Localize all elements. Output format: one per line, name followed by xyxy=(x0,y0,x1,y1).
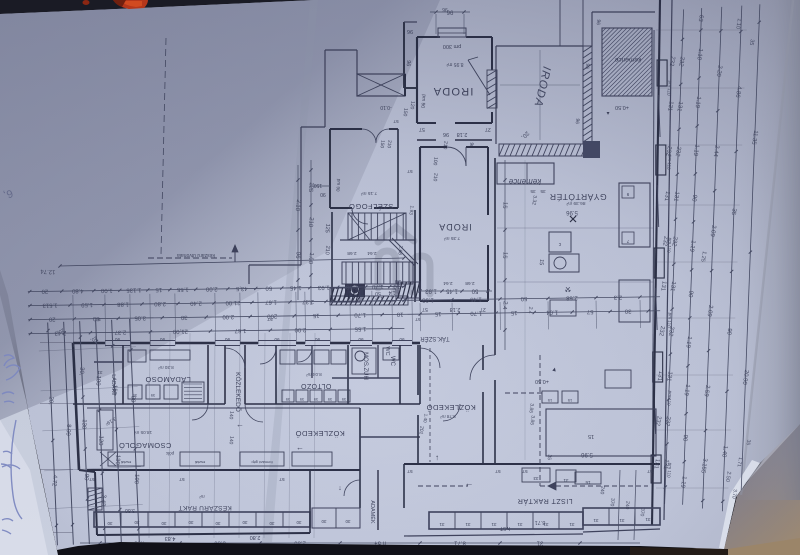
svg-text:-0.10: -0.10 xyxy=(380,104,392,110)
svg-text:2.40: 2.40 xyxy=(189,300,201,306)
svg-text:2.68: 2.68 xyxy=(347,250,357,256)
svg-text:31: 31 xyxy=(517,522,523,527)
svg-text:130: 130 xyxy=(80,419,87,430)
svg-text:esztál: esztál xyxy=(195,460,206,465)
svg-text:1.4ᵛ: 1.4ᵛ xyxy=(375,296,383,301)
svg-text:IRODA: IRODA xyxy=(438,222,472,232)
svg-text:39: 39 xyxy=(313,397,318,402)
svg-text:31: 31 xyxy=(439,522,445,527)
svg-text:96: 96 xyxy=(442,6,448,12)
svg-text:ADAMÉK: ADAMÉK xyxy=(369,500,376,524)
svg-text:57: 57 xyxy=(407,468,413,474)
svg-text:3.05: 3.05 xyxy=(134,314,146,320)
svg-text:+0.50: +0.50 xyxy=(535,378,549,384)
svg-text:2.18: 2.18 xyxy=(457,131,468,137)
svg-text:1.513: 1.513 xyxy=(42,302,58,308)
svg-text:2.00: 2.00 xyxy=(222,313,234,319)
svg-text:KÖZLEKEDŐ: KÖZLEKEDŐ xyxy=(295,429,344,438)
svg-text:90: 90 xyxy=(399,337,405,342)
svg-text:201: 201 xyxy=(417,426,424,435)
svg-text:90: 90 xyxy=(129,395,136,403)
svg-text:һ 5Ŧ: һ 5Ŧ xyxy=(500,525,510,531)
svg-text:2.3: 2.3 xyxy=(613,294,622,300)
svg-text:50: 50 xyxy=(375,290,381,296)
svg-text:57: 57 xyxy=(407,168,413,174)
svg-text:m²: m² xyxy=(199,494,205,499)
svg-text:4.80: 4.80 xyxy=(71,287,83,293)
svg-text:30: 30 xyxy=(296,520,302,525)
svg-text:27: 27 xyxy=(485,126,491,132)
svg-text:formázó gép: formázó gép xyxy=(251,460,272,464)
svg-text:1.93: 1.93 xyxy=(317,284,329,290)
svg-text:1.55: 1.55 xyxy=(354,325,366,331)
svg-text:2.80: 2.80 xyxy=(153,300,165,306)
svg-text:15: 15 xyxy=(567,398,572,403)
svg-text:10: 10 xyxy=(393,283,400,289)
svg-text:←: ← xyxy=(465,478,474,488)
svg-text:30,: 30, xyxy=(78,367,85,376)
svg-text:90: 90 xyxy=(160,337,166,342)
svg-text:210: 210 xyxy=(431,173,438,182)
svg-text:140: 140 xyxy=(227,436,234,445)
svg-text:150: 150 xyxy=(378,140,385,149)
svg-text:31: 31 xyxy=(593,518,599,523)
svg-text:esztál: esztál xyxy=(121,460,132,465)
svg-text:30: 30 xyxy=(269,521,275,526)
svg-text:43,5: 43,5 xyxy=(235,285,247,291)
svg-text:190: 190 xyxy=(133,474,140,485)
svg-text:2.00: 2.00 xyxy=(205,285,217,291)
svg-text:8.30 m²: 8.30 m² xyxy=(158,365,174,370)
svg-text:370: 370 xyxy=(638,508,645,517)
svg-text:▲: ▲ xyxy=(606,110,611,116)
svg-text:készáru ütvonala: készáru ütvonala xyxy=(177,252,215,258)
svg-text:96: 96 xyxy=(574,118,581,124)
svg-text:2.43: 2.43 xyxy=(345,283,357,289)
svg-text:130: 130 xyxy=(114,455,121,466)
svg-text:↑: ↑ xyxy=(435,453,439,462)
svg-text:57: 57 xyxy=(89,476,95,482)
svg-text:1.93: 1.93 xyxy=(425,287,437,293)
svg-text:2.18: 2.18 xyxy=(450,306,461,312)
svg-text:57: 57 xyxy=(495,468,501,474)
svg-text:30: 30 xyxy=(624,308,631,314)
svg-text:7.35 m²: 7.35 m² xyxy=(443,235,460,241)
svg-text:96: 96 xyxy=(405,60,412,67)
svg-text:15: 15 xyxy=(434,310,441,316)
svg-text:50: 50 xyxy=(92,315,99,321)
svg-text:35: 35 xyxy=(540,189,546,194)
svg-text:һ 5Ŧ: һ 5Ŧ xyxy=(374,539,386,545)
svg-text:57: 57 xyxy=(279,476,285,482)
svg-text:90: 90 xyxy=(358,337,364,342)
svg-text:96: 96 xyxy=(407,28,413,34)
svg-text:50: 50 xyxy=(471,287,478,293)
svg-text:96: 96 xyxy=(443,131,449,137)
svg-text:31: 31 xyxy=(619,518,625,523)
svg-text:35: 35 xyxy=(530,189,536,194)
svg-text:31: 31 xyxy=(543,522,549,527)
svg-text:30: 30 xyxy=(321,519,327,524)
svg-text:2.64: 2.64 xyxy=(443,280,453,286)
svg-text:8.71: 8.71 xyxy=(454,539,466,545)
svg-text:3.32: 3.32 xyxy=(530,195,537,206)
svg-text:90: 90 xyxy=(320,191,326,197)
svg-text:30: 30 xyxy=(180,314,187,320)
svg-text:15: 15 xyxy=(588,433,594,439)
svg-text:2.68: 2.68 xyxy=(565,294,577,300)
svg-text:LÁDAMOSÓ: LÁDAMOSÓ xyxy=(145,375,191,384)
svg-text:31: 31 xyxy=(569,522,575,527)
svg-text:1.67: 1.67 xyxy=(264,299,276,305)
svg-text:35: 35 xyxy=(748,39,755,46)
svg-text:120: 120 xyxy=(97,435,104,446)
svg-text:⚒: ⚒ xyxy=(565,285,571,293)
svg-text:1.00: 1.00 xyxy=(100,287,112,293)
svg-text:20: 20 xyxy=(48,316,55,322)
svg-text:57: 57 xyxy=(419,126,425,132)
svg-text:86.39 m²: 86.39 m² xyxy=(566,200,585,206)
svg-text:39: 39 xyxy=(341,397,346,402)
svg-text:210: 210 xyxy=(323,245,330,255)
svg-text:190: 190 xyxy=(94,375,101,386)
svg-text:210: 210 xyxy=(441,141,448,150)
svg-text:2.37: 2.37 xyxy=(114,329,126,335)
svg-text:39: 39 xyxy=(327,397,332,402)
svg-text:16: 16 xyxy=(585,480,591,485)
svg-text:8.04 m²: 8.04 m² xyxy=(306,372,322,377)
svg-text:1.93: 1.93 xyxy=(407,205,414,215)
svg-text:15: 15 xyxy=(155,286,162,292)
svg-text:1.88: 1.88 xyxy=(116,301,128,307)
svg-text:31: 31 xyxy=(563,478,569,483)
svg-text:90: 90 xyxy=(274,337,280,342)
svg-text:1.70: 1.70 xyxy=(470,310,482,316)
svg-text:21.00: 21.00 xyxy=(225,299,241,305)
svg-text:4.72: 4.72 xyxy=(50,474,57,487)
svg-text:↓: ↓ xyxy=(338,485,342,492)
svg-text:1.45: 1.45 xyxy=(446,287,458,293)
svg-text:5.96: 5.96 xyxy=(581,451,593,457)
svg-text:57: 57 xyxy=(415,316,421,322)
svg-text:IRODA: IRODA xyxy=(433,85,474,97)
svg-text:57: 57 xyxy=(179,476,185,482)
svg-text:1.45: 1.45 xyxy=(469,296,481,302)
svg-text:31: 31 xyxy=(491,522,497,527)
svg-text:120: 120 xyxy=(408,101,415,110)
svg-text:240: 240 xyxy=(598,486,605,495)
svg-text:3.85: 3.85 xyxy=(527,403,534,414)
svg-text:20,: 20, xyxy=(47,396,54,405)
svg-text:39: 39 xyxy=(299,397,304,402)
svg-text:2.80: 2.80 xyxy=(250,534,261,540)
svg-text:30: 30 xyxy=(161,521,167,526)
svg-text:kemence: kemence xyxy=(508,177,541,186)
svg-text:3.85: 3.85 xyxy=(528,415,535,426)
svg-text:8.95 m²: 8.95 m² xyxy=(446,61,463,67)
svg-text:96: 96 xyxy=(595,19,602,25)
svg-text:KÖZLEKEDŐ: KÖZLEKEDŐ xyxy=(234,372,243,412)
svg-text:15: 15 xyxy=(538,259,545,266)
svg-text:50: 50 xyxy=(520,295,527,301)
svg-text:21,00: 21,00 xyxy=(172,328,188,334)
svg-text:10: 10 xyxy=(396,311,403,317)
svg-text:30: 30 xyxy=(242,520,248,525)
svg-text:KÖZLEKEDŐ: KÖZLEKEDŐ xyxy=(426,403,475,412)
svg-text:CSOMAGOLÓ: CSOMAGOLÓ xyxy=(119,441,172,450)
svg-text:57: 57 xyxy=(422,306,428,312)
svg-text:35: 35 xyxy=(546,454,553,460)
svg-text:140: 140 xyxy=(227,411,234,420)
svg-text:15: 15 xyxy=(547,398,552,403)
svg-text:kemence: kemence xyxy=(614,56,641,63)
svg-text:15: 15 xyxy=(312,312,319,318)
svg-text:90: 90 xyxy=(225,337,231,342)
svg-text:1.55: 1.55 xyxy=(176,286,188,292)
svg-text:39: 39 xyxy=(150,393,155,398)
svg-text:WC: WC xyxy=(389,356,395,367)
svg-text:57: 57 xyxy=(647,468,653,474)
svg-text:1.67: 1.67 xyxy=(234,327,246,333)
svg-text:2.68: 2.68 xyxy=(465,280,475,286)
svg-text:125: 125 xyxy=(323,223,330,233)
svg-text:2.64: 2.64 xyxy=(367,250,377,256)
svg-text:31: 31 xyxy=(465,522,471,527)
svg-text:57: 57 xyxy=(586,308,593,314)
svg-text:←: ← xyxy=(236,420,244,429)
svg-text:57: 57 xyxy=(393,119,399,124)
svg-text:240: 240 xyxy=(623,501,630,510)
svg-text:1.45: 1.45 xyxy=(289,284,301,290)
svg-text:1.135: 1.135 xyxy=(126,286,142,292)
svg-text:90: 90 xyxy=(115,337,121,342)
svg-text:1.93: 1.93 xyxy=(421,296,433,302)
svg-text:5.96: 5.96 xyxy=(566,209,578,215)
svg-text:33: 33 xyxy=(533,476,539,481)
svg-text:150: 150 xyxy=(401,108,408,117)
svg-text:31: 31 xyxy=(645,517,651,522)
svg-text:2.37: 2.37 xyxy=(301,298,313,304)
svg-text:pm 300: pm 300 xyxy=(443,43,461,49)
svg-text:+0.50: +0.50 xyxy=(615,104,629,110)
svg-text:TÁK.SZÉR: TÁK.SZÉR xyxy=(420,335,450,342)
svg-text:57: 57 xyxy=(522,468,528,474)
svg-text:90: 90 xyxy=(315,337,321,342)
svg-text:30: 30 xyxy=(345,519,351,524)
svg-text:12.74: 12.74 xyxy=(40,268,56,275)
svg-text:SZÉLFOGÓ: SZÉLFOGÓ xyxy=(349,202,394,211)
svg-text:150: 150 xyxy=(111,385,118,396)
svg-text:50: 50 xyxy=(265,285,272,291)
svg-text:20: 20 xyxy=(41,288,48,294)
svg-text:31: 31 xyxy=(536,539,543,545)
svg-text:3.80: 3.80 xyxy=(125,507,135,513)
svg-text:370: 370 xyxy=(608,498,615,507)
svg-text:90: 90 xyxy=(83,474,90,482)
svg-text:1.04: 1.04 xyxy=(546,309,558,315)
svg-text:3.43: 3.43 xyxy=(99,494,106,507)
svg-text:8.00: 8.00 xyxy=(64,424,71,437)
svg-text:1.59: 1.59 xyxy=(80,301,92,307)
svg-text:15: 15 xyxy=(510,309,517,315)
svg-text:210: 210 xyxy=(385,140,392,149)
svg-text:30: 30 xyxy=(215,521,221,526)
svg-text:←: ← xyxy=(296,443,304,452)
svg-text:8.78 m²: 8.78 m² xyxy=(440,414,456,419)
svg-text:2.68: 2.68 xyxy=(396,245,403,255)
svg-text:100: 100 xyxy=(431,157,438,166)
svg-text:1.70: 1.70 xyxy=(354,311,366,317)
svg-text:2.4: 2.4 xyxy=(501,301,508,311)
svg-text:200: 200 xyxy=(266,313,277,319)
svg-text:2.00: 2.00 xyxy=(294,326,306,332)
svg-text:1.70: 1.70 xyxy=(371,283,383,289)
svg-text:4.83: 4.83 xyxy=(165,535,176,541)
svg-text:7.15 m²: 7.15 m² xyxy=(360,190,377,196)
svg-text:LISZT RAKTÁR: LISZT RAKTÁR xyxy=(517,497,572,506)
svg-text:30: 30 xyxy=(107,521,113,526)
